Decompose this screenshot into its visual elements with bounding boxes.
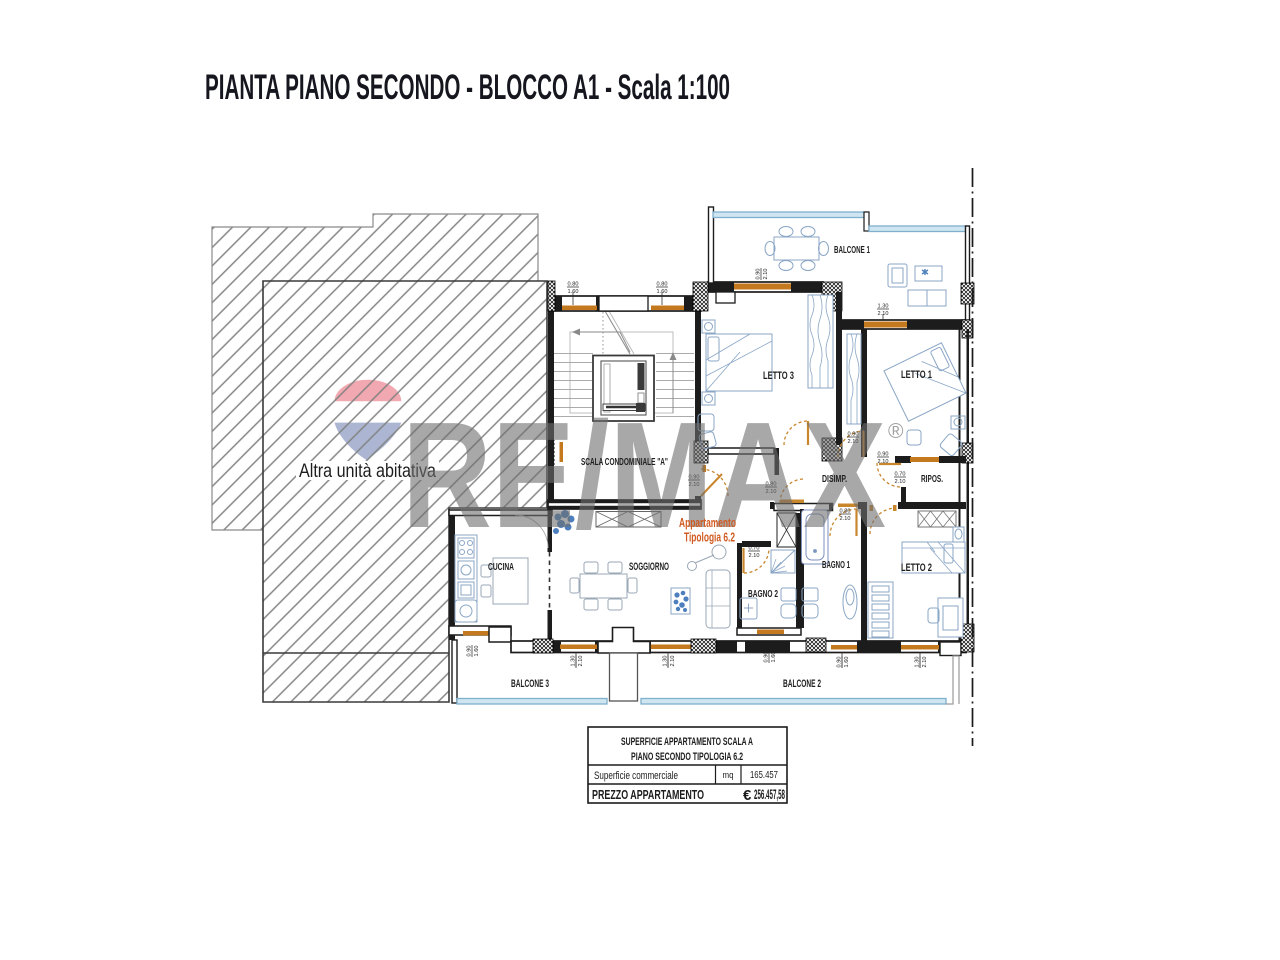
svg-text:®: ® <box>888 420 904 443</box>
svg-text:SCALA CONDOMINIALE "A": SCALA CONDOMINIALE "A" <box>581 456 668 468</box>
svg-text:SUPERFICIE APPARTAMENTO SCALA: SUPERFICIE APPARTAMENTO SCALA A <box>621 736 753 748</box>
svg-text:2.10: 2.10 <box>763 269 769 280</box>
svg-text:BALCONE 3: BALCONE 3 <box>511 678 549 690</box>
svg-text:0.70: 0.70 <box>895 472 906 478</box>
svg-text:DISIMP.: DISIMP. <box>822 473 847 485</box>
svg-text:0.90: 0.90 <box>764 652 770 663</box>
svg-text:BAGNO 1: BAGNO 1 <box>822 559 850 571</box>
svg-text:BALCONE 2: BALCONE 2 <box>783 678 821 690</box>
svg-text:Tipologia 6.2: Tipologia 6.2 <box>684 531 735 545</box>
svg-text:PREZZO APPARTAMENTO: PREZZO APPARTAMENTO <box>592 787 704 802</box>
svg-text:2.10: 2.10 <box>895 479 906 485</box>
svg-text:1.60: 1.60 <box>844 657 850 668</box>
svg-text:PIANTA PIANO SECONDO - BLOCCO: PIANTA PIANO SECONDO - BLOCCO A1 - Scala… <box>205 68 730 107</box>
svg-text:RIPOS.: RIPOS. <box>921 473 943 485</box>
svg-text:LETTO 3: LETTO 3 <box>763 370 794 382</box>
svg-text:1.30: 1.30 <box>878 304 889 310</box>
svg-text:0.90: 0.90 <box>467 646 473 657</box>
svg-text:165.457: 165.457 <box>750 770 778 781</box>
svg-text:0.80: 0.80 <box>568 282 579 288</box>
svg-text:2.10: 2.10 <box>670 656 676 667</box>
svg-text:0.90: 0.90 <box>756 269 762 280</box>
svg-text:1.60: 1.60 <box>474 646 480 657</box>
svg-text:LETTO 2: LETTO 2 <box>901 562 932 574</box>
svg-text:PIANO SECONDO TIPOLOGIA 6.2: PIANO SECONDO TIPOLOGIA 6.2 <box>631 751 743 763</box>
svg-text:BALCONE 1: BALCONE 1 <box>834 244 870 256</box>
svg-text:SOGGIORNO: SOGGIORNO <box>629 561 669 573</box>
svg-text:256.457,58: 256.457,58 <box>754 787 785 802</box>
svg-text:€: € <box>743 787 752 804</box>
svg-text:mq: mq <box>723 770 734 781</box>
svg-text:2.10: 2.10 <box>578 656 584 667</box>
svg-text:RE/MAX: RE/MAX <box>402 390 886 559</box>
svg-text:CUCINA: CUCINA <box>488 561 514 573</box>
svg-text:LETTO 1: LETTO 1 <box>901 369 932 381</box>
svg-text:0.80: 0.80 <box>657 282 668 288</box>
svg-text:BAGNO 2: BAGNO 2 <box>748 588 778 600</box>
svg-text:Appartamento: Appartamento <box>679 516 736 530</box>
svg-text:Superficie commerciale: Superficie commerciale <box>594 770 678 782</box>
svg-text:2.10: 2.10 <box>922 657 928 668</box>
svg-text:1.60: 1.60 <box>771 652 777 663</box>
